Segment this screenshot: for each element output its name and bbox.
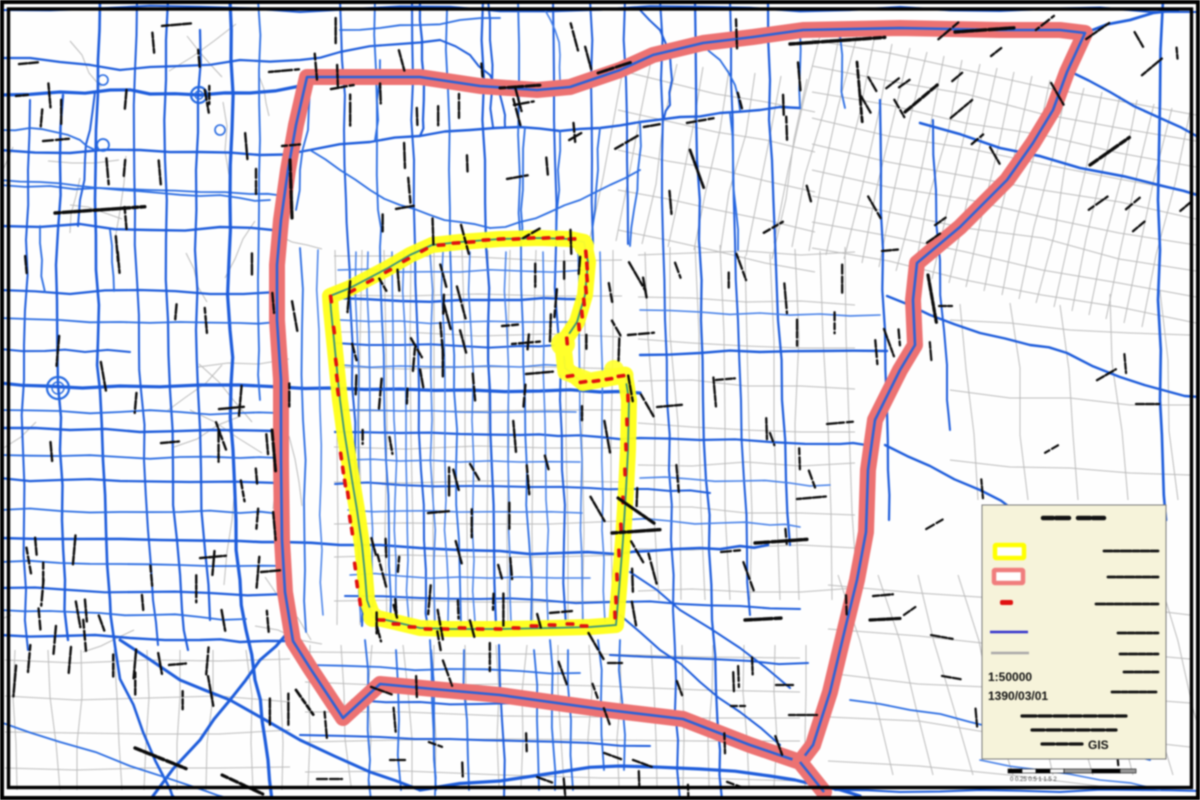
svg-text:1:50000: 1:50000 [988, 670, 1032, 684]
svg-text:0 0.25 0.5 1 1: 0 0.25 0.5 1 1.5 2 [1010, 777, 1057, 783]
svg-text:1390/03/01: 1390/03/01 [988, 689, 1048, 703]
svg-text:GIS: GIS [1088, 738, 1109, 752]
